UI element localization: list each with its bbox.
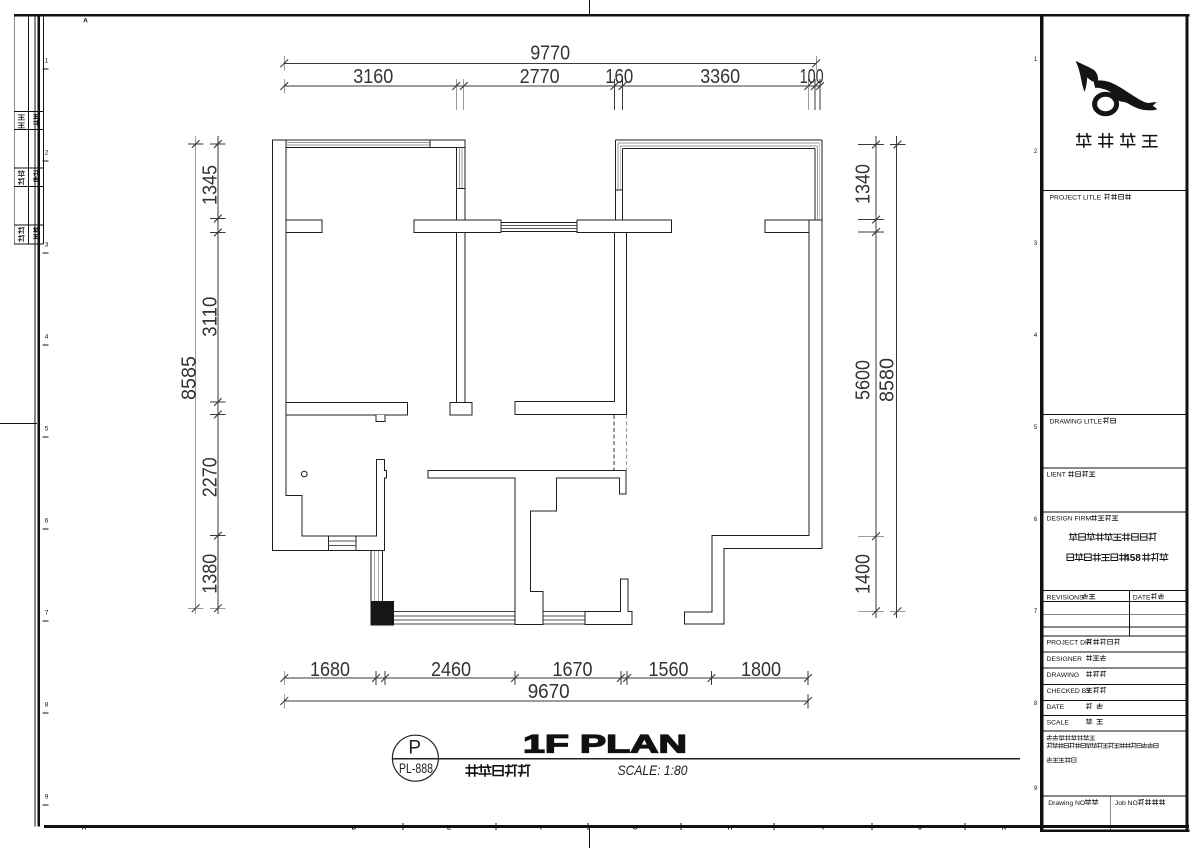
- svg-text:PL-888: PL-888: [399, 761, 433, 776]
- svg-text:100: 100: [800, 66, 824, 88]
- svg-text:J: J: [918, 825, 922, 832]
- svg-text:DESIGN FIRM: DESIGN FIRM: [1047, 516, 1092, 523]
- svg-text:SCALE: SCALE: [1047, 719, 1070, 726]
- svg-text:K: K: [1002, 825, 1007, 832]
- svg-text:1F PLAN: 1F PLAN: [523, 731, 687, 759]
- svg-text:160: 160: [605, 66, 633, 88]
- svg-text:7: 7: [45, 610, 49, 617]
- svg-text:1680: 1680: [310, 659, 350, 681]
- svg-text:DATE: DATE: [1133, 594, 1151, 601]
- svg-text:3360: 3360: [700, 66, 740, 88]
- svg-text:Drawing NO: Drawing NO: [1048, 800, 1085, 807]
- svg-text:2460: 2460: [431, 659, 471, 681]
- svg-text:P: P: [408, 738, 421, 759]
- svg-text:2: 2: [45, 150, 49, 157]
- svg-text:8585: 8585: [179, 356, 201, 400]
- svg-text:8580: 8580: [877, 358, 899, 402]
- svg-text:SCALE: 1:80: SCALE: 1:80: [618, 762, 688, 778]
- svg-text:DRAWING LITLE: DRAWING LITLE: [1050, 418, 1103, 425]
- svg-text:LIENT: LIENT: [1047, 472, 1066, 479]
- svg-text:PROJECT LITLE: PROJECT LITLE: [1050, 195, 1102, 202]
- svg-text:DESIGNER: DESIGNER: [1047, 656, 1083, 663]
- svg-text:1345: 1345: [200, 165, 222, 205]
- svg-text:9: 9: [45, 794, 49, 801]
- svg-text:1670: 1670: [553, 659, 593, 681]
- svg-text:5600: 5600: [853, 360, 875, 400]
- svg-text:9670: 9670: [528, 681, 570, 703]
- svg-text:1380: 1380: [200, 554, 222, 594]
- svg-text:1560: 1560: [649, 659, 689, 681]
- svg-text:2270: 2270: [200, 457, 222, 497]
- svg-text:REVISIONS: REVISIONS: [1047, 594, 1084, 601]
- svg-text:8: 8: [45, 702, 49, 709]
- svg-text:G: G: [632, 825, 637, 832]
- svg-text:5: 5: [45, 426, 49, 433]
- svg-text:A: A: [83, 18, 88, 25]
- svg-text:D: D: [352, 825, 357, 832]
- svg-text:CHECKED BY: CHECKED BY: [1047, 688, 1092, 695]
- svg-text:F: F: [540, 825, 544, 832]
- svg-text:PROJECT DIR: PROJECT DIR: [1047, 640, 1092, 647]
- svg-text:Job NO: Job NO: [1115, 800, 1138, 807]
- svg-text:3: 3: [45, 242, 49, 249]
- svg-text:4: 4: [45, 334, 49, 341]
- svg-text:E: E: [447, 825, 452, 832]
- svg-text:1800: 1800: [741, 659, 781, 681]
- svg-text:A: A: [82, 825, 87, 832]
- svg-text:3160: 3160: [353, 66, 393, 88]
- svg-text:DRAWING: DRAWING: [1047, 672, 1080, 679]
- svg-text:6: 6: [45, 518, 49, 525]
- svg-text:3110: 3110: [200, 297, 222, 337]
- svg-text:2770: 2770: [520, 66, 560, 88]
- svg-text:DATE: DATE: [1047, 704, 1065, 711]
- svg-text:458: 458: [1124, 553, 1141, 564]
- svg-text:1340: 1340: [853, 164, 875, 204]
- svg-text:1400: 1400: [853, 554, 875, 594]
- svg-text:1: 1: [45, 58, 49, 65]
- svg-text:H: H: [728, 825, 733, 832]
- svg-text:I: I: [822, 825, 824, 832]
- svg-text:9770: 9770: [530, 43, 570, 65]
